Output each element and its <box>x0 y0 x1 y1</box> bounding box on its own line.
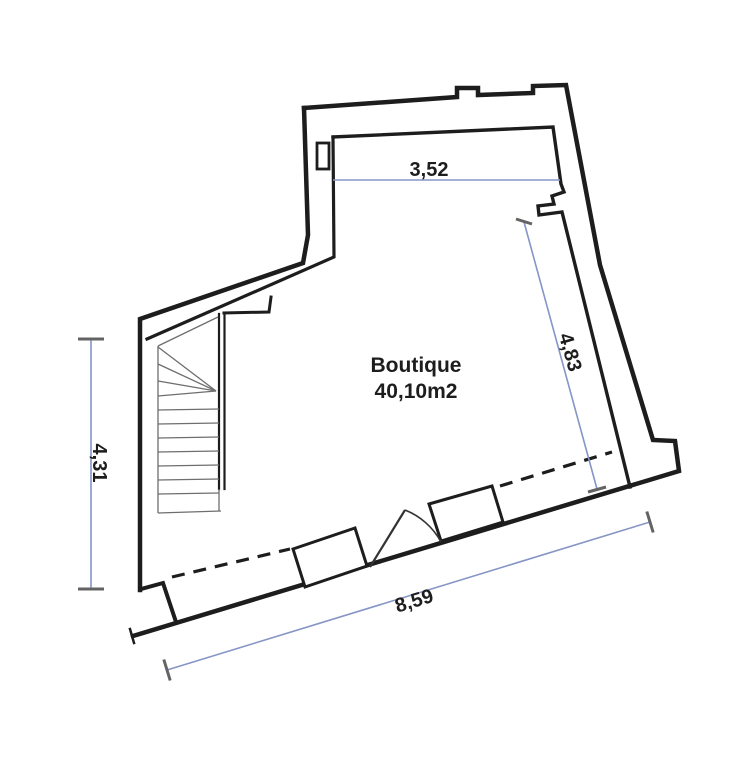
dimension-ticks-layer <box>78 219 653 681</box>
door-layer <box>370 510 441 567</box>
stair-tread-3 <box>158 437 219 438</box>
stair-bottom-edge <box>158 511 221 513</box>
stair-tread-6 <box>158 479 219 480</box>
room-label-name: Boutique <box>371 354 462 377</box>
dim-label-right-height: 4,83 <box>554 331 586 374</box>
dim-label-left-height: 4,31 <box>88 444 110 483</box>
stair-winder-tread-3 <box>158 381 216 391</box>
stair-tread-1 <box>158 409 219 410</box>
top-room-pillar <box>317 143 329 169</box>
staircase <box>158 317 221 513</box>
dim-label-bottom-width: 8,59 <box>392 585 436 617</box>
stair-tread-2 <box>158 423 219 424</box>
dimension-lines-layer <box>91 180 650 670</box>
dim-label-top-width: 3,52 <box>410 159 449 181</box>
bottom-left-jamb <box>141 583 176 622</box>
stair-winder-tread-4 <box>158 391 216 396</box>
shopfront-bay-1 <box>293 528 367 587</box>
stair-tread-7 <box>158 493 219 494</box>
room-label-area: 40,10m2 <box>375 380 458 403</box>
floor-plan-svg: 3,52 4,31 4,83 8,59 Boutique 40,10m2 <box>0 0 746 780</box>
floor-plan-page: 3,52 4,31 4,83 8,59 Boutique 40,10m2 <box>0 0 746 780</box>
shopfront-bay-2 <box>429 486 503 541</box>
stair-winder-tread-1 <box>158 347 216 391</box>
stair-tread-4 <box>158 451 219 452</box>
stair-tread-5 <box>158 465 219 466</box>
dashed-line-left <box>172 549 290 577</box>
stair-winder-tread-2 <box>158 364 216 391</box>
inner-step-above-stairs <box>224 297 271 313</box>
